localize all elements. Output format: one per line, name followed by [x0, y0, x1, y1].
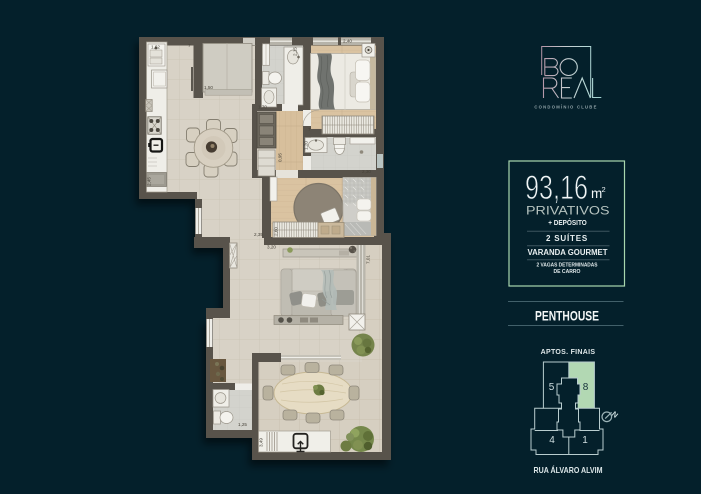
- svg-text:2,40: 2,40: [343, 39, 352, 44]
- svg-text:RUA ÁLVARO ALVIM: RUA ÁLVARO ALVIM: [534, 465, 603, 475]
- svg-text:5: 5: [549, 382, 555, 393]
- svg-text:7,01: 7,01: [366, 255, 371, 264]
- svg-text:2,45: 2,45: [147, 177, 152, 186]
- svg-text:2: 2: [602, 185, 606, 194]
- svg-text:8: 8: [583, 382, 589, 393]
- svg-text:VARANDA GOURMET: VARANDA GOURMET: [528, 247, 609, 257]
- svg-text:93,16: 93,16: [525, 169, 588, 207]
- svg-text:3,49: 3,49: [259, 438, 264, 447]
- svg-text:4: 4: [549, 435, 555, 446]
- svg-text:7: 7: [188, 43, 191, 48]
- svg-text:1,62: 1,62: [151, 45, 160, 50]
- svg-text:1,20: 1,20: [304, 141, 309, 150]
- svg-text:2,60: 2,60: [274, 227, 279, 236]
- svg-text:1,50: 1,50: [204, 85, 213, 90]
- svg-text:2 VAGAS DETERMINADAS: 2 VAGAS DETERMINADAS: [537, 263, 598, 269]
- svg-text:2 SUÍTES: 2 SUÍTES: [546, 234, 588, 243]
- svg-text:APTOS. FINAIS: APTOS. FINAIS: [541, 349, 596, 356]
- svg-text:3,20: 3,20: [267, 245, 276, 250]
- svg-text:1: 1: [582, 435, 588, 446]
- svg-text:DE CARRO: DE CARRO: [554, 269, 581, 275]
- svg-text:1,25: 1,25: [238, 422, 247, 427]
- svg-text:2,35: 2,35: [254, 232, 263, 237]
- svg-text:7: 7: [308, 127, 311, 132]
- svg-text:CONDOMÍNIO CLUBE: CONDOMÍNIO CLUBE: [534, 105, 597, 110]
- svg-text:2,15: 2,15: [293, 47, 298, 56]
- svg-text:+ DEPÓSITO: + DEPÓSITO: [548, 218, 587, 227]
- svg-text:PENTHOUSE: PENTHOUSE: [535, 308, 599, 324]
- svg-text:2,30: 2,30: [362, 169, 371, 174]
- svg-text:1,70: 1,70: [258, 105, 267, 110]
- svg-text:PRIVATIVOS: PRIVATIVOS: [526, 204, 610, 218]
- svg-text:0,95: 0,95: [278, 153, 283, 162]
